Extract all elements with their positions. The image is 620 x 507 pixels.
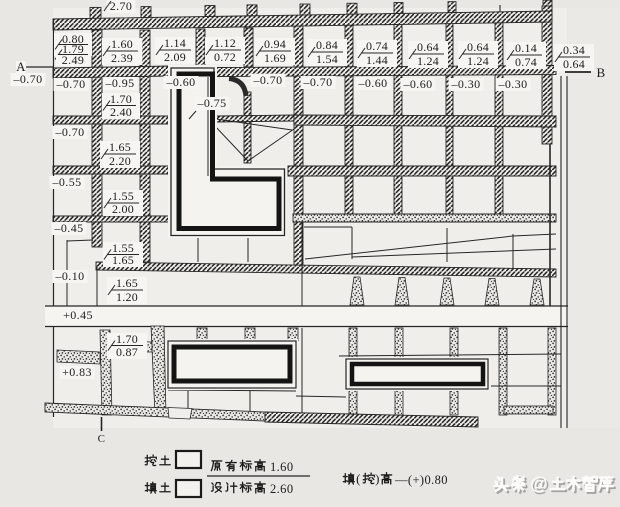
svg-text:0.74: 0.74 bbox=[366, 39, 388, 53]
svg-text:–0.60: –0.60 bbox=[403, 77, 433, 91]
svg-text:0.94: 0.94 bbox=[264, 37, 286, 51]
svg-text:2.20: 2.20 bbox=[109, 154, 131, 168]
svg-text:–0.95: –0.95 bbox=[105, 76, 135, 90]
svg-text:1.14: 1.14 bbox=[164, 36, 186, 50]
svg-text:–0.55: –0.55 bbox=[52, 175, 82, 189]
svg-text:1.20: 1.20 bbox=[116, 290, 138, 304]
svg-text:1.12: 1.12 bbox=[214, 36, 236, 50]
svg-text:0.74: 0.74 bbox=[515, 55, 537, 69]
svg-text:B: B bbox=[596, 65, 605, 80]
svg-text:1.70: 1.70 bbox=[110, 92, 132, 106]
svg-text:2.39: 2.39 bbox=[111, 51, 133, 65]
svg-text:1.65: 1.65 bbox=[112, 253, 134, 267]
svg-text:2.40: 2.40 bbox=[110, 105, 132, 119]
svg-text:0.64: 0.64 bbox=[467, 40, 489, 54]
svg-text:–0.30: –0.30 bbox=[451, 77, 481, 91]
svg-text:–0.70: –0.70 bbox=[253, 73, 283, 87]
svg-text:+0.45: +0.45 bbox=[63, 308, 93, 322]
svg-text:0.34: 0.34 bbox=[563, 43, 585, 57]
svg-text:1.55: 1.55 bbox=[112, 189, 134, 203]
svg-text:—(+)0.80: —(+)0.80 bbox=[394, 473, 448, 487]
svg-text:0.84: 0.84 bbox=[316, 38, 338, 52]
svg-text:2.70: 2.70 bbox=[110, 0, 133, 13]
svg-text:–0.70: –0.70 bbox=[55, 125, 85, 139]
svg-text:+0.83: +0.83 bbox=[62, 365, 92, 379]
svg-text:–0.45: –0.45 bbox=[54, 221, 84, 235]
svg-text:1.60: 1.60 bbox=[270, 460, 293, 474]
svg-text:1.70: 1.70 bbox=[116, 332, 138, 346]
svg-text:1.60: 1.60 bbox=[111, 37, 133, 51]
svg-text:(: ( bbox=[356, 471, 361, 486]
svg-text:2.60: 2.60 bbox=[270, 482, 293, 496]
svg-text:@: @ bbox=[530, 474, 548, 494]
svg-text:–0.70: –0.70 bbox=[303, 75, 333, 89]
svg-text:0.87: 0.87 bbox=[116, 345, 138, 359]
svg-text:–0.70: –0.70 bbox=[56, 77, 86, 91]
svg-text:C: C bbox=[98, 433, 106, 445]
svg-text:2.49: 2.49 bbox=[62, 53, 85, 67]
svg-text:–0.60: –0.60 bbox=[358, 76, 388, 90]
svg-text:–0.10: –0.10 bbox=[55, 269, 85, 283]
svg-text:1.65: 1.65 bbox=[116, 276, 138, 290]
svg-text:1.44: 1.44 bbox=[366, 53, 388, 67]
svg-text:1.24: 1.24 bbox=[467, 54, 489, 68]
svg-text:–0.60: –0.60 bbox=[166, 75, 196, 89]
svg-text:–0.30: –0.30 bbox=[498, 77, 528, 91]
svg-text:2.09: 2.09 bbox=[164, 50, 186, 64]
svg-text:–0.75: –0.75 bbox=[197, 96, 227, 110]
svg-text:1.54: 1.54 bbox=[316, 52, 338, 66]
svg-text:0.64: 0.64 bbox=[563, 57, 585, 71]
svg-text:): ) bbox=[375, 471, 380, 486]
svg-text:–0.70: –0.70 bbox=[13, 72, 43, 86]
svg-text:0.72: 0.72 bbox=[214, 50, 236, 64]
svg-text:1.69: 1.69 bbox=[264, 51, 286, 65]
svg-text:0.14: 0.14 bbox=[515, 41, 537, 55]
svg-text:0.64: 0.64 bbox=[417, 40, 439, 54]
svg-text:1.24: 1.24 bbox=[417, 54, 439, 68]
svg-text:1.65: 1.65 bbox=[109, 140, 131, 154]
svg-text:2.00: 2.00 bbox=[112, 202, 134, 216]
